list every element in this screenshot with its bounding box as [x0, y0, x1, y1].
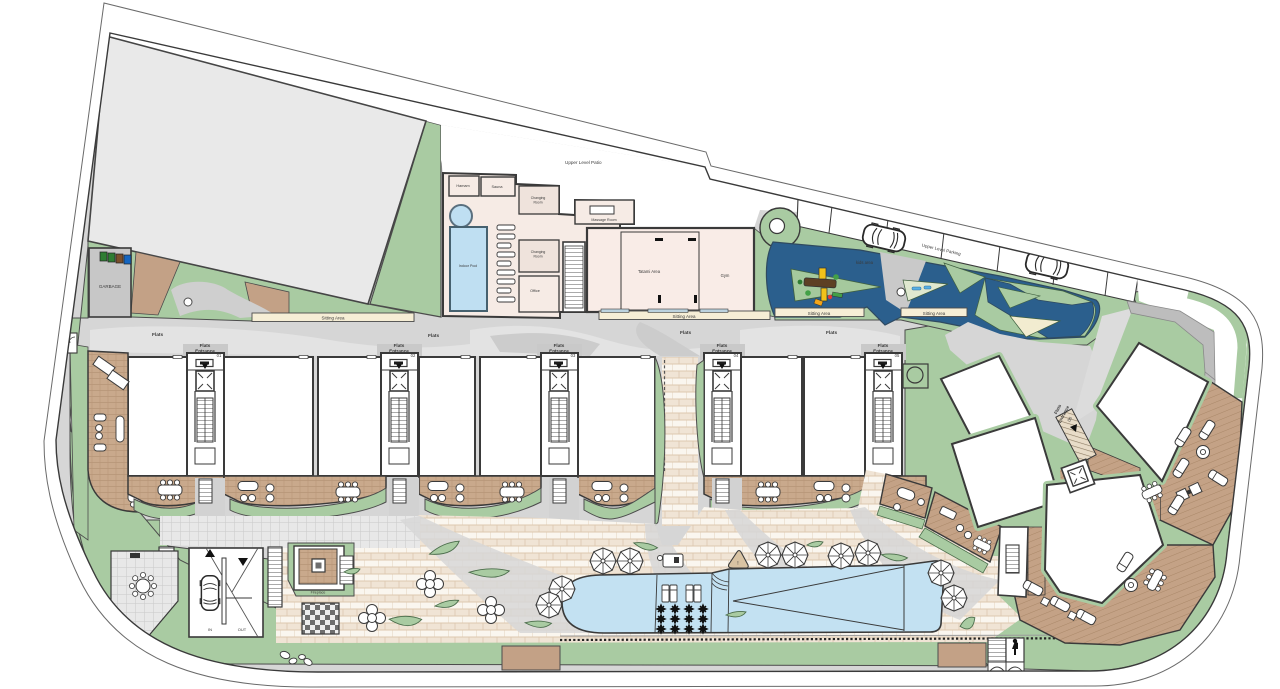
svg-text:Changing: Changing: [531, 196, 546, 200]
svg-text:Gym: Gym: [721, 273, 730, 278]
svg-text:Indoor Pool: Indoor Pool: [459, 264, 478, 268]
svg-text:Changing: Changing: [531, 250, 546, 254]
svg-text:Flats: Flats: [428, 333, 440, 339]
svg-text:Sitting Area: Sitting Area: [923, 311, 946, 316]
svg-text:Sitting Area: Sitting Area: [808, 311, 831, 316]
svg-text:!: !: [737, 561, 738, 567]
svg-text:Entrance: Entrance: [389, 349, 409, 354]
svg-text:Entrance: Entrance: [195, 349, 215, 354]
svg-text:OUT: OUT: [238, 627, 247, 632]
svg-text:Tatami Area: Tatami Area: [638, 269, 661, 274]
svg-text:Flats: Flats: [200, 343, 211, 348]
svg-text:Flats: Flats: [826, 330, 838, 336]
svg-text:Upper Level Patio: Upper Level Patio: [565, 160, 602, 165]
svg-text:05: 05: [895, 353, 900, 358]
svg-text:Room: Room: [533, 201, 542, 205]
svg-text:Office: Office: [530, 289, 540, 293]
svg-text:Sitting Area: Sitting Area: [321, 316, 345, 321]
svg-text:Flats: Flats: [554, 343, 565, 348]
svg-text:04: 04: [734, 353, 739, 358]
svg-text:Entrance: Entrance: [873, 349, 893, 354]
svg-text:kids area: kids area: [856, 260, 874, 265]
svg-text:Flats: Flats: [878, 343, 889, 348]
svg-text:02: 02: [411, 353, 416, 358]
svg-text:Room: Room: [533, 255, 542, 259]
svg-text:Massage Room: Massage Room: [591, 218, 616, 222]
svg-text:Sauna: Sauna: [492, 185, 504, 189]
svg-text:03: 03: [571, 353, 576, 358]
svg-text:01: 01: [217, 353, 222, 358]
svg-text:Flats: Flats: [717, 343, 728, 348]
svg-text:Fireplace: Fireplace: [311, 591, 326, 595]
svg-text:Sitting Area: Sitting Area: [672, 314, 696, 319]
svg-text:Flats: Flats: [680, 330, 692, 336]
svg-text:Entrance: Entrance: [712, 349, 732, 354]
svg-text:Hamam: Hamam: [456, 184, 469, 188]
svg-text:IN: IN: [208, 627, 212, 632]
svg-text:GARBAGE: GARBAGE: [99, 284, 121, 289]
svg-text:Entrance: Entrance: [549, 349, 569, 354]
svg-text:Flats: Flats: [152, 332, 164, 338]
svg-text:Flats: Flats: [394, 343, 405, 348]
